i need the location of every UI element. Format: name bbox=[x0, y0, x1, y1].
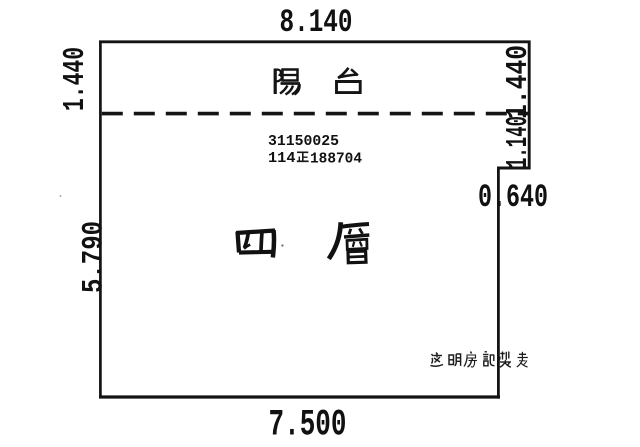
svg-text:8.140: 8.140 bbox=[280, 4, 353, 41]
svg-text:188704: 188704 bbox=[310, 151, 362, 168]
svg-text:1.440: 1.440 bbox=[58, 47, 93, 111]
svg-text:1.140: 1.140 bbox=[501, 116, 536, 168]
svg-text:0.640: 0.640 bbox=[478, 179, 548, 216]
svg-text:1.440: 1.440 bbox=[501, 45, 536, 119]
svg-text:31150025: 31150025 bbox=[268, 133, 339, 150]
svg-text:5.790: 5.790 bbox=[78, 221, 112, 293]
svg-text:114: 114 bbox=[268, 150, 296, 167]
svg-text:7.500: 7.500 bbox=[269, 405, 347, 443]
